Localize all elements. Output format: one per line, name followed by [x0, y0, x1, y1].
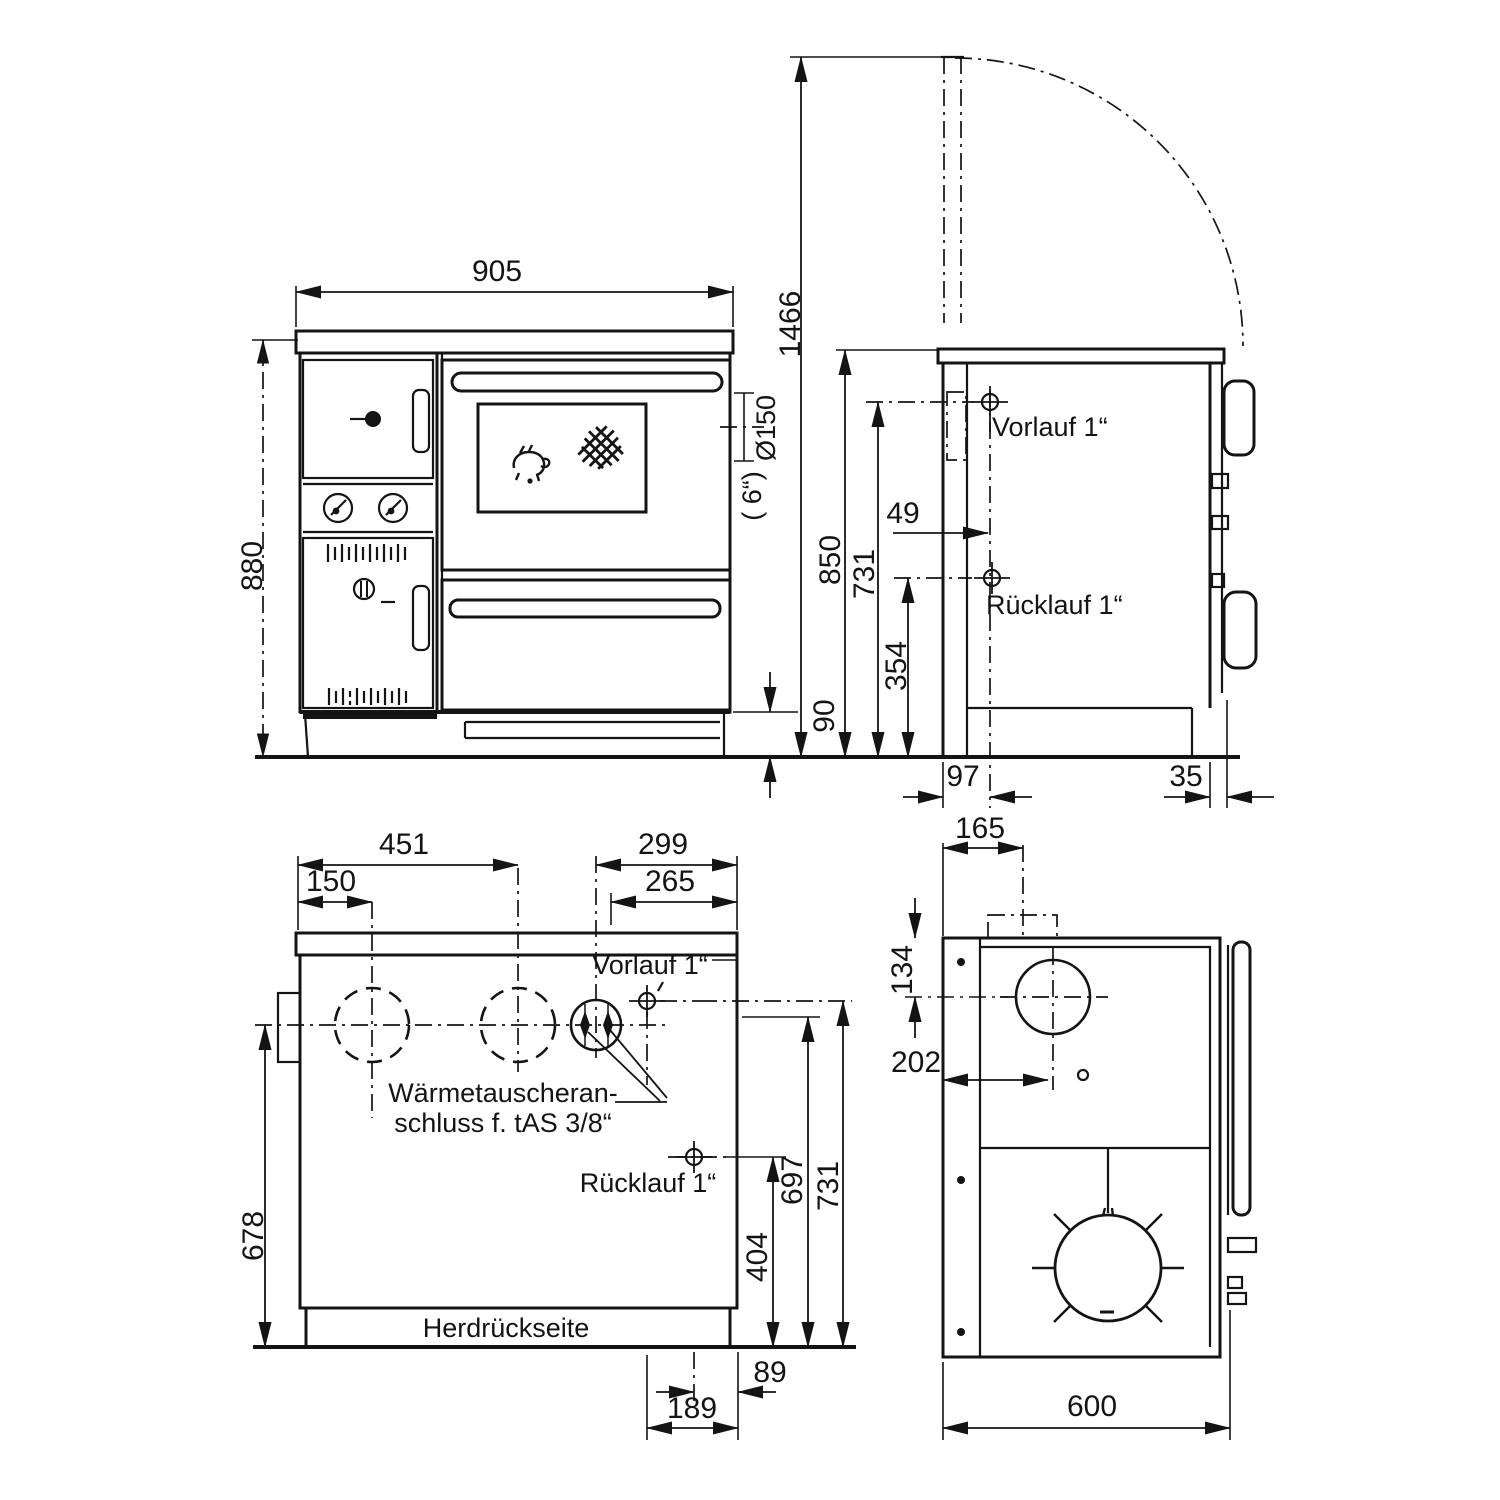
top-view: 165 134 202 600	[886, 812, 1256, 1440]
thermometer-gauge-left	[324, 494, 352, 522]
firebox-handle	[413, 390, 429, 452]
rear-150-label: 150	[306, 865, 356, 898]
gauge-panel	[303, 484, 433, 532]
dim-top-165: 165	[943, 812, 1023, 936]
front-top-plate	[296, 331, 733, 353]
drawer-handle	[450, 600, 720, 617]
plinth-height-label: 90	[808, 699, 841, 732]
dim-rear-697: 697	[742, 1017, 820, 1347]
air-control-knob	[354, 579, 395, 602]
dim-front-width: 905	[296, 255, 733, 327]
dim-side-49: 49	[886, 390, 990, 808]
oven-door	[442, 360, 730, 580]
oven-handle-top	[1233, 942, 1250, 1215]
rear-side-caption: Herdrückseite	[423, 1313, 590, 1343]
side-flue-stub	[278, 993, 300, 1062]
firebox-knob	[365, 411, 381, 427]
dim-rear-150: 150	[298, 865, 372, 902]
roasting-pig-icon	[514, 445, 550, 484]
ash-door	[303, 538, 433, 708]
dim-top-202: 202	[891, 1046, 1048, 1080]
front-plinth	[300, 710, 730, 757]
dim-side-731: 731	[848, 402, 881, 757]
oven-window	[478, 404, 646, 512]
flue-hole-top	[1000, 948, 1108, 1090]
front-height-label: 880	[236, 541, 269, 591]
rear-vorlauf-label: Vorlauf 1“	[592, 950, 708, 980]
heat-exchanger-label-2: schluss f. tAS 3/8“	[394, 1108, 612, 1138]
lower-drawer	[442, 580, 730, 710]
dim-side-97: 97	[903, 760, 1032, 808]
side-ruecklauf-height-label: 354	[880, 641, 913, 691]
rear-89-label: 89	[753, 1356, 786, 1389]
top-202-label: 202	[891, 1046, 941, 1079]
drawer-handle-side	[1224, 592, 1256, 668]
rear-vorlauf-connection: Vorlauf 1“	[592, 950, 736, 1085]
dim-top-600: 600	[943, 1310, 1230, 1440]
stove-dimension-drawing: 905 880 Ø150 ( 6“) 1466 90	[0, 0, 1500, 1500]
rear-299-label: 299	[638, 828, 688, 861]
rear-451-label: 451	[379, 828, 429, 861]
dim-front-height: 880	[236, 340, 298, 757]
flue-swing-arc	[955, 58, 1243, 346]
dim-plinth-height: 90	[733, 672, 841, 798]
vent-slots-bottom	[329, 688, 406, 705]
firebox-door	[303, 360, 433, 478]
side-ruecklauf-label: Rücklauf 1“	[986, 590, 1123, 620]
side-plinth-recess	[967, 708, 1192, 757]
rear-731-label: 731	[812, 1161, 845, 1211]
flue-diameter-inch-label: ( 6“)	[737, 471, 767, 521]
dim-flue-total-height: 1466	[774, 57, 948, 757]
flue-pipe-phantom	[941, 57, 1243, 346]
flue-diameter-label: Ø150	[751, 395, 781, 461]
rear-404-label: 404	[741, 1232, 774, 1282]
thermometer-gauge-right	[379, 494, 407, 522]
rear-ruecklauf-label: Rücklauf 1“	[580, 1168, 717, 1198]
dim-rear-189: 189	[647, 1355, 738, 1440]
hotplate	[1032, 1208, 1184, 1322]
grill-hatch-icon	[571, 419, 632, 480]
flue-total-height-label: 1466	[774, 291, 807, 358]
side-door-handles	[1212, 381, 1256, 668]
side-offset35-label: 35	[1169, 760, 1202, 793]
ash-door-handle	[413, 586, 429, 650]
side-vorlauf-label: Vorlauf 1“	[992, 412, 1108, 442]
rear-678-label: 678	[237, 1211, 270, 1261]
rear-ruecklauf-connection: Rücklauf 1“	[580, 1141, 726, 1198]
top-134-label: 134	[886, 945, 919, 995]
vent-slots-top	[328, 544, 405, 562]
side-offset97-label: 97	[946, 760, 979, 793]
dim-rear-265: 265	[611, 865, 737, 925]
top-165-label: 165	[955, 812, 1005, 845]
oven-door-handle	[452, 373, 722, 391]
rear-265-label: 265	[645, 865, 695, 898]
dim-top-134: 134	[886, 898, 1008, 1038]
dim-side-354: 354	[880, 578, 913, 757]
side-view: Vorlauf 1“ Rücklauf 1“ 850 731 354 49	[814, 57, 1274, 808]
rear-189-label: 189	[667, 1392, 717, 1425]
side-height-label: 850	[814, 535, 847, 585]
side-offset49-label: 49	[886, 497, 919, 530]
heat-exchanger-label-1: Wärmetauscheran-	[388, 1078, 618, 1108]
technical-drawing-page: 905 880 Ø150 ( 6“) 1466 90	[0, 0, 1500, 1500]
heat-exchanger-callout: Wärmetauscheran- schluss f. tAS 3/8“	[388, 1030, 667, 1138]
top-600-label: 600	[1067, 1390, 1117, 1423]
side-vorlauf-height-label: 731	[848, 549, 881, 599]
top-front-edge	[1228, 942, 1256, 1304]
side-top-plate	[938, 349, 1224, 363]
side-ruecklauf-connection: Rücklauf 1“	[894, 562, 1123, 620]
rear-697-label: 697	[776, 1155, 809, 1205]
rear-view: Herdrückseite Vorlauf 1“	[237, 828, 856, 1440]
dim-rear-678: 678	[237, 1025, 270, 1347]
dim-side-35: 35	[1164, 700, 1274, 808]
oven-handle-side	[1224, 381, 1254, 455]
side-vorlauf-connection: Vorlauf 1“	[866, 386, 1108, 460]
front-width-label: 905	[472, 255, 522, 288]
